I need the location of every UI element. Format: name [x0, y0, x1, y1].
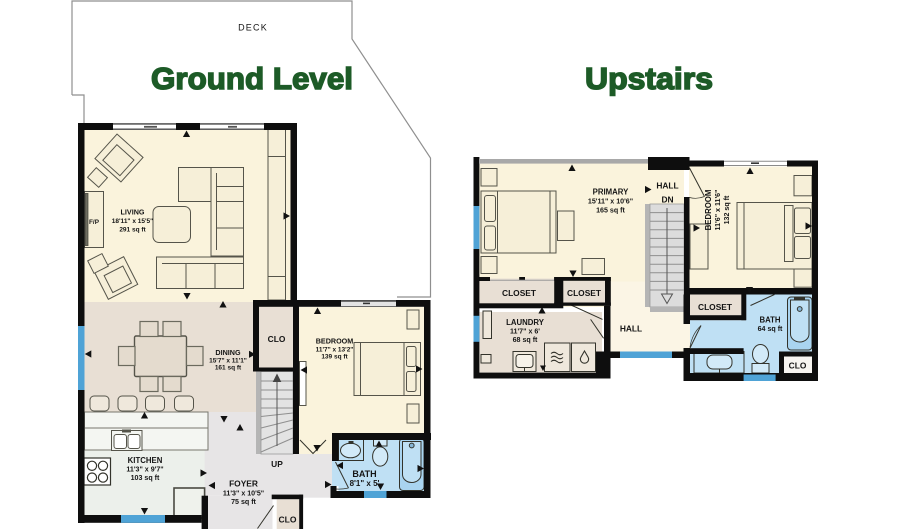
svg-text:CLOSET: CLOSET: [567, 288, 602, 298]
svg-text:F/P: F/P: [89, 219, 100, 226]
svg-text:LIVING: LIVING: [121, 208, 145, 217]
svg-text:LAUNDRY: LAUNDRY: [506, 318, 545, 327]
svg-text:165 sq ft: 165 sq ft: [596, 207, 625, 215]
svg-text:Upstairs: Upstairs: [585, 62, 713, 96]
svg-text:103 sq ft: 103 sq ft: [131, 474, 160, 482]
svg-text:291 sq ft: 291 sq ft: [119, 227, 146, 234]
svg-text:CLO: CLO: [279, 515, 297, 525]
svg-text:PRIMARY: PRIMARY: [593, 188, 629, 197]
svg-text:CLO: CLO: [268, 334, 286, 344]
svg-text:FOYER: FOYER: [229, 479, 258, 489]
svg-text:11'6" x 11'6": 11'6" x 11'6": [714, 190, 722, 231]
svg-text:11'3" x 10'5": 11'3" x 10'5": [223, 490, 264, 498]
svg-text:DN: DN: [661, 195, 673, 205]
svg-text:HALL: HALL: [656, 181, 678, 191]
svg-text:BEDROOM: BEDROOM: [316, 337, 354, 346]
svg-text:BEDROOM: BEDROOM: [704, 190, 713, 231]
svg-text:CLOSET: CLOSET: [502, 288, 537, 298]
svg-text:75 sq ft: 75 sq ft: [231, 498, 256, 506]
svg-text:11'7" x 6': 11'7" x 6': [510, 328, 540, 336]
svg-text:15'11" x 10'6": 15'11" x 10'6": [588, 198, 633, 206]
svg-text:68 sq ft: 68 sq ft: [513, 336, 538, 344]
svg-text:161 sq ft: 161 sq ft: [215, 365, 242, 372]
svg-text:BATH: BATH: [352, 469, 376, 479]
svg-text:DECK: DECK: [238, 23, 268, 33]
svg-text:11'3" x 9'7": 11'3" x 9'7": [126, 466, 163, 474]
svg-text:DINING: DINING: [215, 348, 241, 357]
svg-text:132 sq ft: 132 sq ft: [723, 195, 731, 224]
svg-text:BATH: BATH: [759, 316, 780, 325]
svg-text:KITCHEN: KITCHEN: [128, 456, 163, 465]
svg-text:18'11" x 15'5": 18'11" x 15'5": [112, 218, 153, 225]
svg-text:15'7" x 11'1": 15'7" x 11'1": [209, 358, 247, 365]
svg-text:11'7" x 13'2": 11'7" x 13'2": [316, 347, 354, 354]
svg-text:139 sq ft: 139 sq ft: [321, 354, 348, 361]
svg-text:HALL: HALL: [620, 324, 642, 334]
svg-text:CLO: CLO: [789, 361, 807, 371]
svg-text:CLOSET: CLOSET: [698, 302, 733, 312]
svg-text:64 sq ft: 64 sq ft: [758, 325, 783, 333]
svg-text:8'1" x 5': 8'1" x 5': [350, 479, 380, 488]
svg-text:Ground Level: Ground Level: [151, 62, 353, 96]
svg-text:UP: UP: [271, 459, 283, 469]
